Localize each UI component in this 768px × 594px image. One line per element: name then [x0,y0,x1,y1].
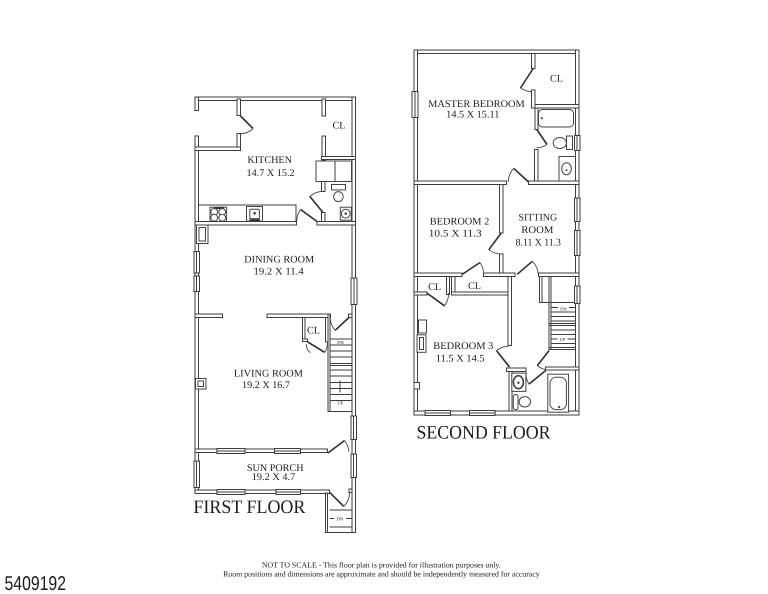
svg-text:UP: UP [337,401,343,406]
svg-text:8.11 X 11.3: 8.11 X 11.3 [516,237,561,248]
svg-text:19.2 X 16.7: 19.2 X 16.7 [242,380,290,391]
svg-text:NOT TO SCALE - This floor plan: NOT TO SCALE - This floor plan is provid… [262,561,501,570]
svg-text:DN: DN [337,340,344,345]
svg-text:BEDROOM 2: BEDROOM 2 [430,216,490,227]
svg-text:CL: CL [332,121,345,132]
svg-text:KITCHEN: KITCHEN [247,155,292,166]
svg-text:DN: DN [560,306,567,311]
svg-text:CL: CL [550,74,563,85]
svg-text:19.2 X 4.7: 19.2 X 4.7 [252,472,296,483]
svg-text:DINING ROOM: DINING ROOM [244,254,314,265]
svg-text:UP: UP [560,337,566,342]
svg-text:SITTING: SITTING [518,213,557,224]
svg-text:SECOND FLOOR: SECOND FLOOR [417,423,551,444]
svg-text:BEDROOM 3: BEDROOM 3 [433,341,493,352]
svg-text:ROOM: ROOM [521,225,553,236]
svg-text:10.5 X 11.3: 10.5 X 11.3 [429,228,482,239]
svg-text:5409192: 5409192 [5,573,67,594]
svg-text:19.2 X 11.4: 19.2 X 11.4 [254,267,304,278]
svg-text:LIVING ROOM: LIVING ROOM [234,369,303,380]
svg-text:Room positions and dimensions: Room positions and dimensions are approx… [223,570,540,579]
svg-text:CL: CL [307,326,320,337]
svg-text:CL: CL [428,282,441,293]
svg-text:14.5 X 15.11: 14.5 X 15.11 [446,110,499,121]
svg-text:14.7 X 15.2: 14.7 X 15.2 [247,168,295,179]
svg-text:FIRST FLOOR: FIRST FLOOR [193,497,305,518]
svg-text:CL: CL [468,281,481,292]
svg-text:DN: DN [337,517,344,522]
svg-text:11.5 X 14.5: 11.5 X 14.5 [436,353,485,364]
svg-text:MASTER BEDROOM: MASTER BEDROOM [428,99,525,110]
